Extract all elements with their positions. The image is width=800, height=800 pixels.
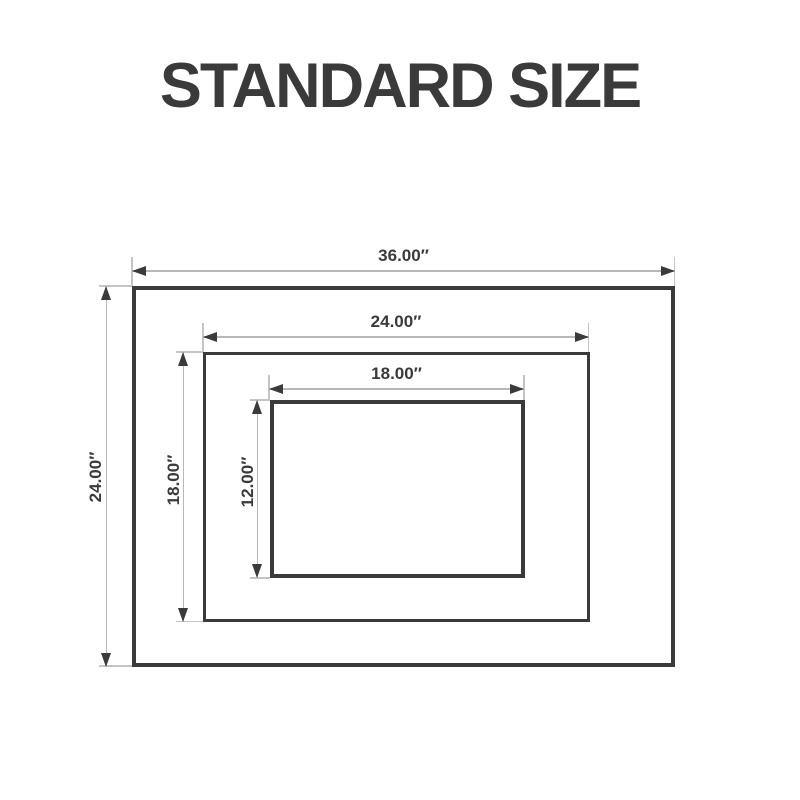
arrowhead-up-icon [252, 400, 262, 414]
arrowhead-left-icon [269, 384, 283, 394]
arrowhead-down-icon [178, 608, 188, 622]
dim-label-outer-width: 36.00″ [132, 246, 675, 266]
dim-label-outer-height: 24.00″ [86, 452, 106, 503]
dimension-line [132, 270, 675, 272]
dim-label-middle-width: 24.00″ [203, 312, 589, 332]
rect-inner-18x12 [270, 400, 525, 578]
dim-label-inner-height: 12.00″ [238, 457, 258, 508]
dimension-line [269, 388, 524, 390]
arrowhead-down-icon [101, 653, 111, 667]
arrowhead-up-icon [101, 286, 111, 300]
arrowhead-left-icon [203, 332, 217, 342]
dim-label-inner-width: 18.00″ [269, 364, 524, 384]
arrowhead-right-icon [575, 332, 589, 342]
arrowhead-down-icon [252, 564, 262, 578]
dimension-line [203, 336, 589, 338]
diagram-canvas: STANDARD SIZE 36.00″ 24.00″ 18.00″ [0, 0, 800, 800]
arrowhead-up-icon [178, 352, 188, 366]
dim-label-middle-height: 18.00″ [164, 455, 184, 506]
arrowhead-left-icon [132, 266, 146, 276]
page-title: STANDARD SIZE [0, 50, 800, 122]
arrowhead-right-icon [661, 266, 675, 276]
arrowhead-right-icon [510, 384, 524, 394]
